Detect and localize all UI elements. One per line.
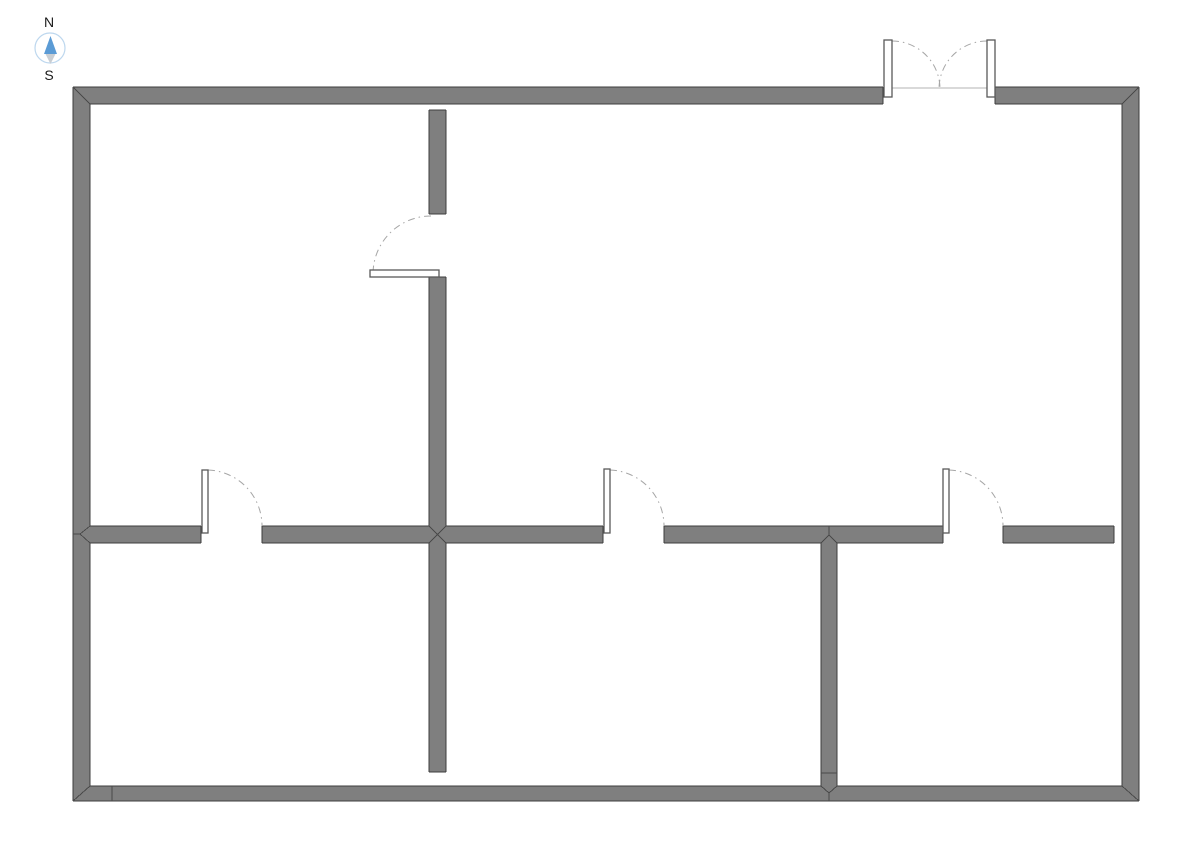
interior-wall-horizontal-seg4 (1003, 526, 1114, 543)
floor-plan-viewport: N S (0, 0, 1191, 842)
outer-wall-south (73, 786, 1139, 801)
interior-wall-vertical-upper-above-door (429, 110, 446, 214)
entry-double-door-right-leaf (987, 40, 995, 97)
door-swing-arc-lower-middle-room (610, 470, 664, 526)
outer-wall-top-right-of-entry (995, 87, 1139, 104)
interior-wall-horizontal-seg1 (90, 526, 201, 543)
door-leaf-lower-middle-room (604, 469, 610, 533)
floor-plan-canvas: N S (0, 0, 1191, 842)
outer-wall-west (73, 87, 90, 801)
door-leaf-upper-left-room (370, 270, 439, 277)
interior-wall-vertical-east-lower (821, 543, 837, 786)
compass-rose: N S (35, 14, 65, 83)
door-leaf-lower-left-room (202, 470, 208, 533)
door-swing-arc-upper-left-room (373, 216, 431, 274)
outer-wall-east (1122, 87, 1139, 801)
door-swing-arc-lower-right-room (949, 470, 1003, 526)
outer-wall-top-left-of-entry (73, 87, 883, 104)
entry-double-door-left-swing-arc (892, 41, 940, 89)
entry-double-door-left-leaf (884, 40, 892, 97)
interior-wall-horizontal-seg2 (262, 526, 603, 543)
walls-and-doors-layer (73, 87, 1139, 801)
interior-wall-vertical-upper-below-door (429, 277, 446, 543)
compass-north-label: N (44, 14, 54, 30)
interior-wall-vertical-middle-lower (429, 543, 446, 772)
door-leaf-lower-right-room (943, 469, 949, 533)
interior-wall-horizontal-seg3 (664, 526, 943, 543)
door-swing-arc-lower-left-room (208, 470, 262, 526)
entry-double-door-right-swing-arc (939, 41, 987, 89)
compass-south-label: S (44, 67, 53, 83)
doors-layer (202, 40, 1003, 533)
